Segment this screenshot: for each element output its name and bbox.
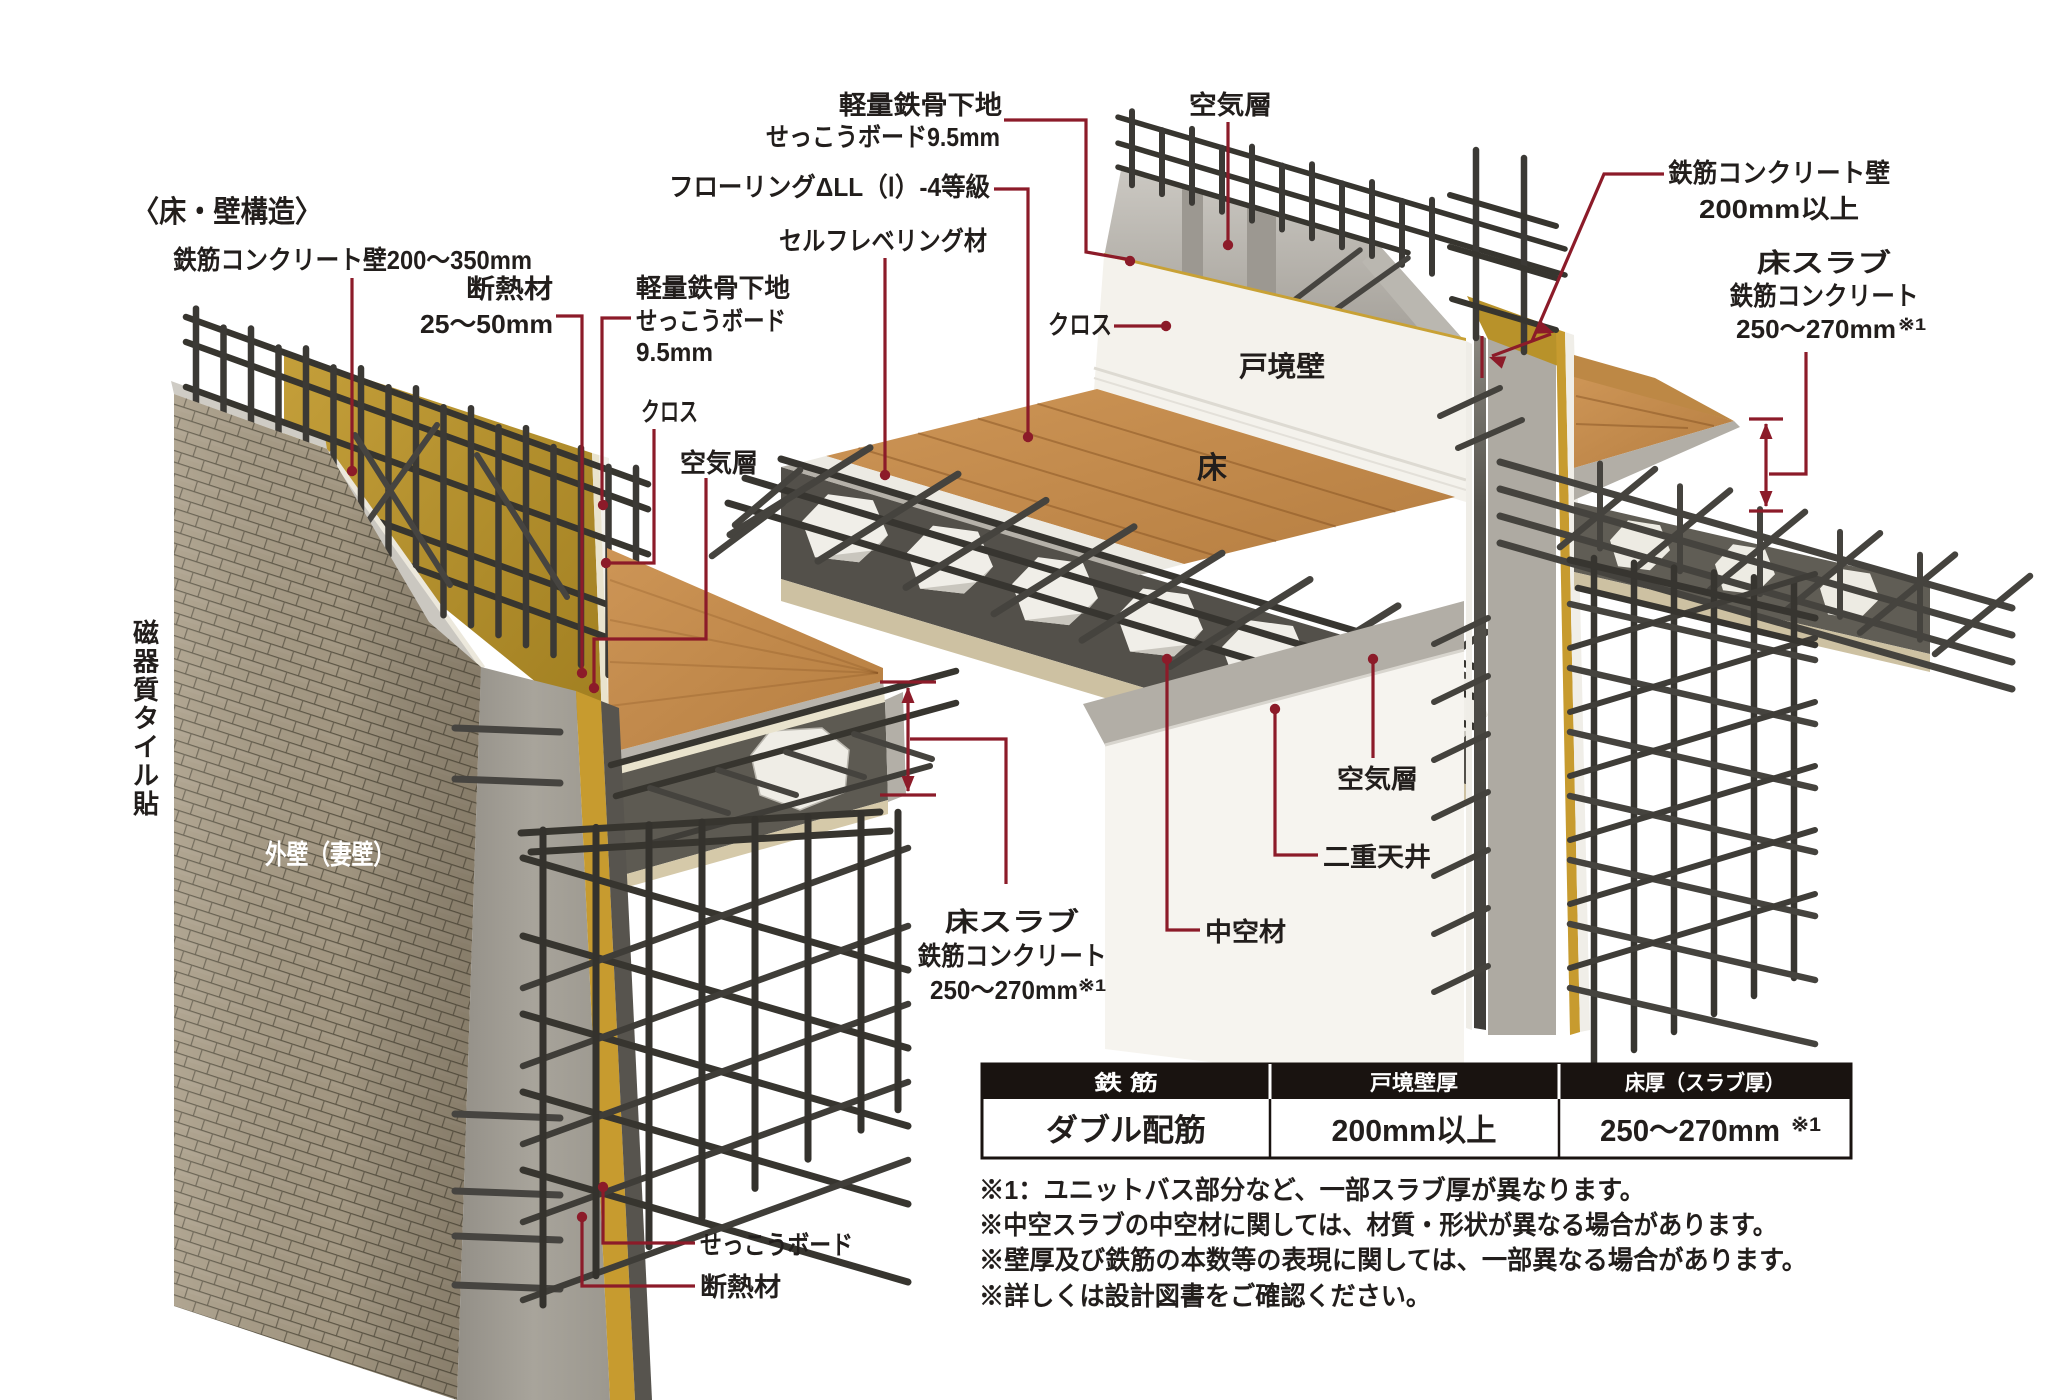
svg-text:床厚（スラブ厚）: 床厚（スラブ厚） <box>1625 1071 1785 1095</box>
svg-text:外壁（妻壁）: 外壁（妻壁） <box>265 840 395 870</box>
svg-text:二重天井: 二重天井 <box>1323 842 1431 872</box>
svg-text:断熱材: 断熱材 <box>466 274 553 304</box>
svg-text:〈床・壁構造〉: 〈床・壁構造〉 <box>132 196 322 229</box>
svg-text:クロス: クロス <box>1048 310 1112 340</box>
svg-text:イ: イ <box>133 732 159 762</box>
svg-text:9.5mm: 9.5mm <box>636 337 713 367</box>
svg-text:床: 床 <box>1197 452 1227 485</box>
svg-text:鉄筋コンクリート壁200〜350mm: 鉄筋コンクリート壁200〜350mm <box>173 245 532 275</box>
svg-text:空気層: 空気層 <box>1337 764 1418 794</box>
svg-text:ル: ル <box>133 761 159 791</box>
svg-text:鉄筋コンクリート壁: 鉄筋コンクリート壁 <box>1668 158 1890 188</box>
svg-text:鉄筋コンクリート: 鉄筋コンクリート <box>1730 281 1919 311</box>
svg-text:床スラブ: 床スラブ <box>1757 248 1891 278</box>
svg-text:200mm以上: 200mm以上 <box>1699 194 1859 224</box>
svg-text:250〜270mm: 250〜270mm <box>1600 1113 1780 1148</box>
svg-text:※1: ※1 <box>1791 1115 1821 1136</box>
svg-text:空気層: 空気層 <box>1189 90 1272 120</box>
svg-text:戸境壁: 戸境壁 <box>1239 351 1325 382</box>
svg-text:鉄筋コンクリート: 鉄筋コンクリート <box>918 941 1107 971</box>
svg-text:※中空スラブの中空材に関しては、材質・形状が異なる場合があり: ※中空スラブの中空材に関しては、材質・形状が異なる場合があります。 <box>979 1210 1777 1240</box>
svg-text:フローリングΔLL（Ⅰ）-4等級: フローリングΔLL（Ⅰ）-4等級 <box>669 172 990 202</box>
svg-text:タ: タ <box>133 704 159 734</box>
svg-text:※1: ※1 <box>1078 976 1106 995</box>
svg-text:※詳しくは設計図書をご確認ください。: ※詳しくは設計図書をご確認ください。 <box>979 1281 1431 1311</box>
svg-text:貼: 貼 <box>133 789 159 819</box>
svg-text:質: 質 <box>133 675 159 705</box>
svg-text:中空材: 中空材 <box>1205 917 1286 947</box>
svg-text:セルフレベリング材: セルフレベリング材 <box>779 226 987 256</box>
svg-text:25〜50mm: 25〜50mm <box>420 309 553 339</box>
svg-text:※1: ※1 <box>1898 315 1926 334</box>
svg-text:床スラブ: 床スラブ <box>945 907 1079 937</box>
svg-text:※壁厚及び鉄筋の本数等の表現に関しては、一部異なる場合があり: ※壁厚及び鉄筋の本数等の表現に関しては、一部異なる場合があります。 <box>979 1245 1807 1275</box>
svg-text:200mm以上: 200mm以上 <box>1332 1113 1497 1148</box>
svg-text:器: 器 <box>132 647 160 677</box>
svg-text:※1：ユニットバス部分など、一部スラブ厚が異なります。: ※1：ユニットバス部分など、一部スラブ厚が異なります。 <box>979 1175 1645 1205</box>
svg-text:クロス: クロス <box>641 397 698 427</box>
svg-text:戸境壁厚: 戸境壁厚 <box>1370 1071 1458 1095</box>
svg-text:鉄 筋: 鉄 筋 <box>1094 1071 1158 1095</box>
svg-text:せっこうボード: せっこうボード <box>636 306 786 336</box>
svg-text:空気層: 空気層 <box>680 448 758 478</box>
svg-text:磁: 磁 <box>133 618 159 648</box>
svg-text:軽量鉄骨下地: 軽量鉄骨下地 <box>839 90 1002 120</box>
svg-text:ダブル配筋: ダブル配筋 <box>1046 1113 1206 1148</box>
svg-text:250〜270mm: 250〜270mm <box>930 975 1078 1005</box>
svg-text:軽量鉄骨下地: 軽量鉄骨下地 <box>636 273 790 303</box>
svg-text:250〜270mm: 250〜270mm <box>1736 314 1896 344</box>
svg-text:断熱材: 断熱材 <box>700 1272 781 1302</box>
svg-text:せっこうボード9.5mm: せっこうボード9.5mm <box>766 122 1000 152</box>
svg-text:せっこうボード: せっこうボード <box>700 1230 853 1260</box>
